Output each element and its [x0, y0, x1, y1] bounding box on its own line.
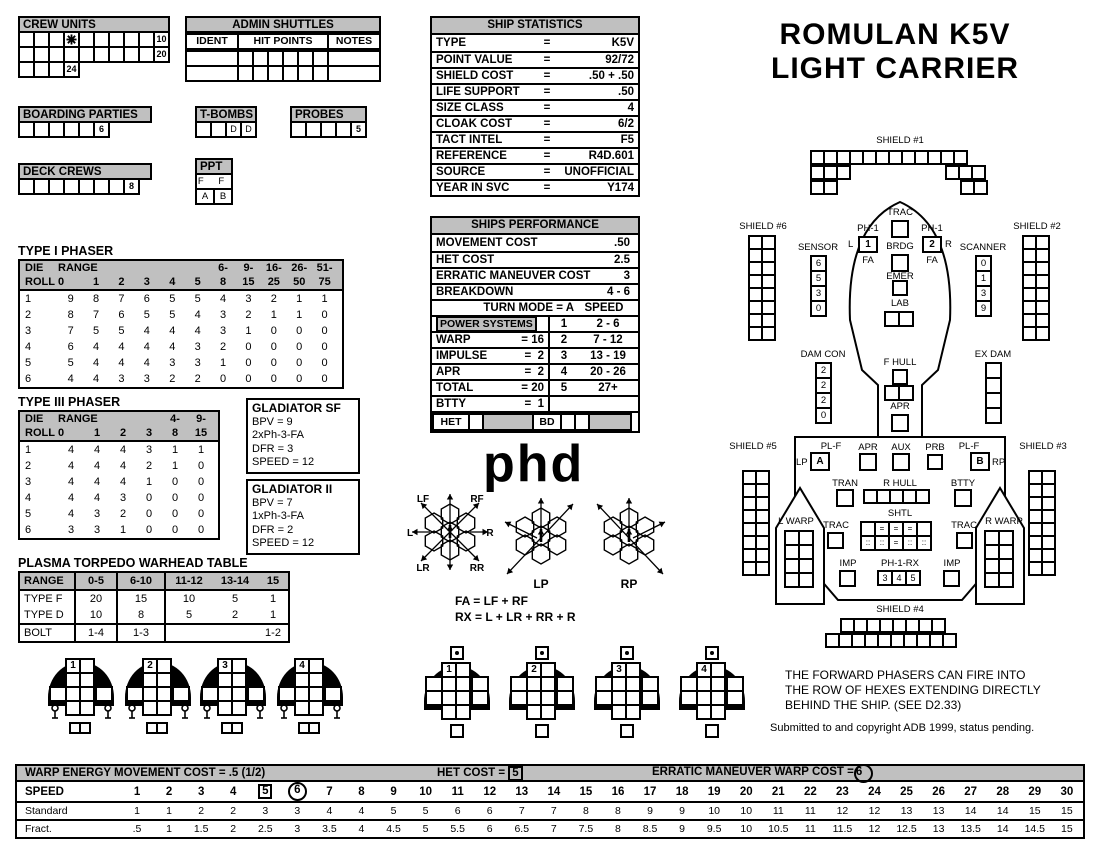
status-dot-box[interactable]	[535, 646, 549, 660]
speed-cell: 15	[1051, 805, 1083, 817]
box-row	[859, 453, 877, 471]
wing-box[interactable]	[95, 686, 113, 702]
stat-row: REFERENCE=R4D.601	[432, 147, 638, 163]
crew-unit-box[interactable]: 20	[153, 46, 170, 63]
phaser-value-cell: 0	[287, 355, 312, 371]
trac-box[interactable]	[827, 532, 844, 549]
phaser-value-cell: 4	[134, 339, 159, 355]
deck-crews-tracker: DECK CREWS 8	[18, 163, 152, 195]
standard-row: Standard11223344556677889910101111121213…	[17, 801, 1083, 819]
phaser-value-cell: 3	[109, 371, 134, 387]
ppt-a-box[interactable]: A	[195, 188, 215, 205]
hardpoint-icon	[127, 704, 137, 720]
probe-box[interactable]	[927, 454, 943, 470]
dam-con-box[interactable]: 0	[815, 407, 832, 424]
emer-box	[892, 280, 908, 296]
note-line: THE FORWARD PHASERS CAN FIRE INTO	[785, 668, 1041, 683]
fract-row: Fract..511.522.533.544.555.566.577.588.5…	[17, 819, 1083, 837]
admin-shuttles-header: IDENT HIT POINTS NOTES	[185, 33, 381, 50]
shield-box[interactable]	[931, 618, 946, 633]
t-bombs-boxes: DD	[195, 121, 257, 138]
box-row	[810, 180, 838, 195]
plasma-cell: 15	[258, 573, 288, 589]
box-row: DD	[195, 121, 257, 138]
wing-box[interactable]	[726, 690, 744, 706]
phaser-value-cell: 0	[312, 307, 337, 323]
box-row	[185, 65, 381, 82]
phaser-value-cell: 1	[110, 522, 136, 538]
fighter-box[interactable]	[79, 700, 95, 716]
stat-eq: =	[534, 102, 560, 114]
speed-cell: 14	[955, 805, 987, 817]
stat-label: POINT VALUE	[436, 54, 534, 66]
shield-box[interactable]	[1041, 561, 1056, 576]
phaser-header-cell: 5	[185, 275, 210, 289]
speed-cell: 8	[602, 805, 634, 817]
phaser-header-cell: 3	[134, 275, 159, 289]
phaser-value-cell: 3	[210, 323, 235, 339]
fighter-spec-line: BPV = 7	[252, 497, 354, 511]
plasma-cell: 1-3	[118, 625, 166, 641]
sensor-label: SENSOR	[798, 242, 838, 253]
wing-box[interactable]	[641, 690, 659, 706]
turn-speed-range: 20 - 26	[578, 366, 638, 378]
speed-cell: 8	[602, 823, 634, 835]
wing-box[interactable]	[172, 686, 190, 702]
speed-cell: 12	[858, 805, 890, 817]
plasma-cell	[166, 625, 212, 641]
phaser-value-cell: 3	[185, 355, 210, 371]
scanner-box[interactable]: 9	[975, 300, 992, 317]
bridge-box	[891, 254, 909, 272]
aux-box[interactable]	[892, 453, 910, 471]
shield-box	[742, 470, 770, 576]
deck-crew-box[interactable]: 8	[123, 178, 140, 195]
ordnance-box[interactable]	[231, 722, 243, 734]
boarding-party-box[interactable]: 6	[93, 121, 110, 138]
speed-cell: 23	[826, 786, 858, 798]
phaser-header-cell	[160, 261, 185, 275]
speed-cell: 9	[634, 805, 666, 817]
speed-cell: 2	[217, 805, 249, 817]
stat-row: TACT INTEL=F5	[432, 131, 638, 147]
stat-eq: =	[534, 86, 560, 98]
speed-cell: 6	[474, 805, 506, 817]
hardpoint-icon	[279, 704, 289, 720]
ppt-tracker: PPT F F A B	[195, 158, 233, 205]
bd-gray-box[interactable]	[588, 413, 632, 431]
power-label: IMPULSE	[436, 350, 524, 362]
speed-cell: 27	[955, 786, 987, 798]
fighter-box[interactable]	[231, 700, 247, 716]
shield-box	[748, 235, 776, 341]
status-dot-box[interactable]	[450, 646, 464, 660]
stat-label: SIZE CLASS	[436, 102, 534, 114]
box-row	[927, 454, 943, 470]
warp-box	[784, 530, 814, 588]
type1-phaser-table: DIERANGE6-9-16-26-51-ROLL012345815255075…	[18, 259, 344, 389]
power-cell: WARP= 16	[432, 333, 550, 347]
btty-box	[954, 489, 972, 507]
admin-shuttles-title: ADMIN SHUTTLES	[185, 16, 381, 33]
power-value: = 20	[521, 382, 544, 394]
perf-label: MOVEMENT COST	[436, 237, 614, 249]
stat-value: .50 + .50	[560, 70, 634, 82]
phaser-value-cell: 0	[210, 371, 235, 387]
ex-dam-box[interactable]	[985, 407, 1002, 424]
shield-box[interactable]	[823, 180, 838, 195]
plasma-a-box[interactable]: A	[810, 452, 830, 471]
turn-mode-value: 5	[550, 382, 578, 394]
shield-box[interactable]	[973, 180, 988, 195]
speed-cell: 30	[1051, 786, 1083, 798]
phaser-value-cell: 0	[236, 355, 261, 371]
phaser-value-cell: 2	[185, 371, 210, 387]
phaser-row: 2444210	[20, 458, 218, 474]
shield-box	[810, 165, 851, 180]
ordnance-box[interactable]	[450, 724, 464, 738]
plasma-row: TYPE F20151051	[20, 591, 288, 607]
box-row	[960, 180, 988, 195]
wing-box[interactable]	[556, 690, 574, 706]
shield-box	[1022, 235, 1050, 341]
het-gray-box[interactable]	[482, 413, 534, 431]
power-turn-row: BTTY= 1	[432, 395, 638, 411]
box-row: 345	[877, 570, 921, 586]
phaser-value-cell: 5	[20, 506, 58, 522]
perf-value: 4 - 6	[607, 286, 634, 298]
box-row	[985, 407, 1002, 424]
warp-box[interactable]	[798, 572, 814, 588]
box-row	[956, 532, 973, 549]
phaser-value-cell: 6	[20, 371, 58, 387]
phaser-header-cell: 4	[160, 275, 185, 289]
lab-box	[884, 311, 914, 327]
stat-row: POINT VALUE=92/72	[432, 51, 638, 67]
phaser-value-cell: 7	[58, 323, 83, 339]
phaser-value-cell: 3	[84, 506, 110, 522]
phaser-value-cell: 3	[160, 355, 185, 371]
stat-value: .50	[560, 86, 634, 98]
plasma-cell: 10	[166, 591, 212, 607]
plasma-cell	[212, 625, 258, 641]
ph1-left-arc: FA	[862, 255, 874, 266]
plasma-cell: 13-14	[212, 573, 258, 589]
box-row	[892, 280, 908, 296]
ordnance-box[interactable]	[705, 724, 719, 738]
power-value: = 2	[524, 366, 544, 378]
f-hull-box	[884, 385, 914, 401]
ordnance-box[interactable]	[156, 722, 168, 734]
speed-cell: 8	[570, 805, 602, 817]
phaser-value-cell: 4	[185, 307, 210, 323]
shield-box	[840, 618, 946, 633]
shield-box[interactable]	[953, 150, 968, 165]
warp-cost-header: WARP ENERGY MOVEMENT COST = .5 (1/2)	[17, 767, 437, 779]
speed-cell: 7	[538, 805, 570, 817]
phaser-header-cell: RANGE	[58, 261, 83, 275]
ship-statistics-rows: TYPE=K5VPOINT VALUE=92/72SHIELD COST=.50…	[432, 35, 638, 195]
admin-shuttle-box[interactable]	[327, 65, 381, 82]
speed-cell: 11	[762, 805, 794, 817]
plasma-row: RANGE0-56-1011-1213-1415	[20, 573, 288, 591]
speed-cell: 13	[923, 823, 955, 835]
speed-cell: 28	[987, 786, 1019, 798]
phaser-value-cell: 0	[312, 339, 337, 355]
fighter-spec-line: GLADIATOR II	[252, 483, 354, 497]
phaser-value-cell: 0	[162, 506, 188, 522]
perf-value: 2.5	[614, 254, 634, 266]
shield-box[interactable]	[971, 165, 986, 180]
speed-cell: 1	[153, 823, 185, 835]
fighter-box[interactable]	[625, 704, 641, 720]
phaser-header-cell: 1	[83, 275, 108, 289]
trac-box[interactable]	[891, 220, 909, 238]
phaser-header-cell: 0	[58, 275, 83, 289]
ph1-right-side: R	[945, 239, 952, 250]
speed-cell: 4	[313, 805, 345, 817]
btty-box[interactable]	[954, 489, 972, 507]
shield-box	[810, 180, 838, 195]
speed-cell: 1	[121, 805, 153, 817]
shield-box[interactable]	[761, 326, 776, 341]
performance-row: ERRATIC MANEUVER COST3	[432, 267, 638, 283]
fighter-box[interactable]	[540, 704, 556, 720]
performance-row: HET COST2.5	[432, 251, 638, 267]
box-row: 8	[18, 178, 152, 195]
imp-box[interactable]	[839, 570, 856, 587]
ppt-row2: A B	[195, 188, 233, 205]
phaser-header-cell: 6-	[210, 261, 235, 275]
phaser-value-cell: 0	[261, 323, 286, 339]
hardpoint-icon	[180, 704, 190, 720]
ph1-right-box[interactable]: 2	[922, 236, 942, 253]
speed-cell: 6	[281, 782, 313, 801]
phaser-value-cell: 8	[58, 307, 83, 323]
phaser-value-cell: 4	[58, 506, 84, 522]
ordnance-box[interactable]	[79, 722, 91, 734]
het-bd-row: HET BD	[432, 411, 638, 431]
phaser-row: 4443000	[20, 490, 218, 506]
fa-formula: FA = LF + RF	[455, 594, 528, 608]
speed-cell: 25	[891, 786, 923, 798]
box-row	[863, 489, 930, 504]
speed-cell: 2	[153, 786, 185, 798]
phaser-value-cell: 2	[261, 291, 286, 307]
box-row	[884, 385, 914, 401]
trac-label: TRAC	[823, 520, 849, 531]
shield-box[interactable]	[1035, 326, 1050, 341]
box-row: 5	[290, 121, 367, 138]
phaser-value-cell: 0	[236, 371, 261, 387]
speed-cell: 11	[794, 805, 826, 817]
box-row	[892, 453, 910, 471]
apr-box[interactable]	[859, 453, 877, 471]
speed-cell: 3.5	[313, 823, 345, 835]
phaser-value-cell: 4	[109, 355, 134, 371]
apr-label: APR	[890, 401, 910, 412]
stat-row: LIFE SUPPORT=.50	[432, 83, 638, 99]
phaser-value-cell: 4	[83, 339, 108, 355]
phaser-row: 644332200000	[20, 371, 342, 387]
ph1-left-box[interactable]: 1	[858, 236, 878, 253]
fighter-box[interactable]	[455, 704, 471, 720]
phaser-value-cell: 5	[160, 291, 185, 307]
probe-box[interactable]: 5	[350, 121, 367, 138]
box-row: 0	[810, 300, 827, 317]
phaser-value-cell: 2	[110, 506, 136, 522]
fighter-right: 3	[593, 646, 661, 740]
sensor-box[interactable]: 0	[810, 300, 827, 317]
phaser-value-cell: 4	[84, 474, 110, 490]
power-label: BTTY	[436, 398, 524, 410]
phaser-header-cell: 51-	[312, 261, 337, 275]
arc-label: R	[486, 528, 494, 539]
shield-box[interactable]	[942, 633, 957, 648]
probe-label: PRB	[925, 442, 945, 453]
phaser-value-cell: 1	[162, 458, 188, 474]
trac-box	[956, 532, 973, 549]
phaser-value-cell: 1	[261, 307, 286, 323]
speed-row: SPEED12345678910111213141516171819202122…	[17, 782, 1083, 801]
speed-cell: 1.5	[185, 823, 217, 835]
fighter-spec-line: 2xPh-3-FA	[252, 429, 354, 443]
warp-energy-table: WARP ENERGY MOVEMENT COST = .5 (1/2) HET…	[15, 764, 1085, 839]
type1-phaser-title: TYPE I PHASER	[18, 244, 113, 258]
speed-cell: 2	[185, 805, 217, 817]
plasma-cell: 11-12	[166, 573, 212, 589]
stat-value: 92/72	[560, 54, 634, 66]
wing-box[interactable]	[471, 690, 489, 706]
phaser-value-cell: 0	[188, 474, 214, 490]
fighter-left: 2	[124, 656, 192, 736]
speed-cell: 1	[121, 786, 153, 798]
fighter-box[interactable]	[308, 700, 324, 716]
phaser-value-cell: 3	[136, 442, 162, 458]
speed-cell: 9	[666, 805, 698, 817]
phaser-row: 198765543211	[20, 291, 342, 307]
speed-cell: 12	[858, 823, 890, 835]
trac-box[interactable]	[956, 532, 973, 549]
phaser-header-cell	[185, 261, 210, 275]
phaser-value-cell: 5	[160, 307, 185, 323]
shield4-label: SHIELD #4	[876, 604, 924, 615]
deck-crews-boxes: 8	[18, 178, 152, 195]
speed-cell: 13.5	[955, 823, 987, 835]
het-label: HET	[432, 413, 470, 431]
ordnance-box[interactable]	[620, 724, 634, 738]
phaser-value-cell: 8	[83, 291, 108, 307]
bridge-box[interactable]	[891, 254, 909, 272]
wing-box[interactable]	[247, 686, 265, 702]
shuttle-box[interactable]: ::	[916, 535, 932, 551]
phaser-value-cell: 1	[312, 291, 337, 307]
tran-box[interactable]	[836, 489, 854, 507]
box-row	[784, 572, 814, 588]
ordnance-box[interactable]	[535, 724, 549, 738]
phaser-value-cell: 4	[84, 442, 110, 458]
stat-label: CLOAK COST	[436, 118, 534, 130]
speed-cell: 14	[538, 786, 570, 798]
status-dot-box[interactable]	[620, 646, 634, 660]
power-label: APR	[436, 366, 524, 378]
status-dot-box[interactable]	[705, 646, 719, 660]
phaser-header-cell: 25	[261, 275, 286, 289]
phaser-header-cell: 2	[109, 275, 134, 289]
performance-stat-rows: MOVEMENT COST.50HET COST2.5ERRATIC MANEU…	[432, 235, 638, 299]
fighter-right: 4	[678, 646, 746, 740]
speed-cell: 13	[506, 786, 538, 798]
stat-eq: =	[534, 150, 560, 162]
rx-formula: RX = L + LR + RR + R	[455, 610, 575, 624]
speed-cell: 4.5	[378, 823, 410, 835]
hardpoint-icon	[103, 704, 113, 720]
plasma-cell: 1-4	[76, 625, 118, 641]
plasma-cell: TYPE D	[20, 607, 76, 623]
f-hull-box[interactable]	[898, 385, 914, 401]
power-value: = 1	[524, 398, 544, 410]
phaser-header-cell: 2	[110, 426, 136, 440]
status-dot-icon	[710, 651, 714, 655]
phaser-value-cell: 0	[312, 371, 337, 387]
stat-row: SOURCE=UNOFFICIAL	[432, 163, 638, 179]
r-hull-box[interactable]	[915, 489, 930, 504]
shield-box[interactable]	[836, 165, 851, 180]
speed-cost-rows: SPEED12345678910111213141516171819202122…	[15, 782, 1085, 839]
fighter-left: 4	[276, 656, 344, 736]
ppt-b-box[interactable]: B	[213, 188, 233, 205]
phaser-value-cell: 2	[136, 458, 162, 474]
t-bomb-box[interactable]: D	[240, 121, 257, 138]
phaser-value-cell: 4	[20, 490, 58, 506]
speed-cell: 14.5	[1019, 823, 1051, 835]
box-row	[891, 414, 909, 432]
box-row	[892, 369, 908, 385]
phaser-header-cell: 15	[188, 426, 214, 440]
f-hull-box[interactable]	[892, 369, 908, 385]
stat-value: K5V	[560, 37, 634, 49]
copyright-line: Submitted to and copyright ADB 1999, sta…	[770, 722, 1034, 734]
ph1-rx-box[interactable]: 5	[905, 570, 921, 586]
note-line: BEHIND THE SHIP. (SEE D2.33)	[785, 698, 1041, 713]
firing-arc-svg: LP	[496, 492, 586, 592]
sheet-title: ROMULAN K5V LIGHT CARRIER	[730, 18, 1060, 86]
box-row	[840, 618, 946, 633]
admin-shuttle-box[interactable]	[185, 65, 239, 82]
ordnance-box[interactable]	[308, 722, 320, 734]
plasma-cell: 1	[258, 591, 288, 607]
speed-cell: 22	[794, 786, 826, 798]
turn-speed-range: 13 - 19	[578, 350, 638, 362]
speed-cell: 9	[378, 786, 410, 798]
ph1-left-label: PH-1	[857, 223, 879, 234]
wing-box[interactable]	[324, 686, 342, 702]
fighter-box[interactable]	[710, 704, 726, 720]
crew-unit-box[interactable]: 24	[63, 61, 80, 78]
power-and-turn-rows: POWER SYSTEMS12 - 6WARP= 1627 - 12IMPULS…	[432, 315, 638, 411]
warp-box[interactable]	[998, 572, 1014, 588]
emer-box[interactable]	[892, 280, 908, 296]
fighter-box[interactable]	[156, 700, 172, 716]
box-row: 24	[18, 61, 170, 78]
lab-box[interactable]	[898, 311, 914, 327]
phaser-row: 464444320000	[20, 339, 342, 355]
imp-box[interactable]	[943, 570, 960, 587]
apr-box[interactable]	[891, 414, 909, 432]
phaser-value-cell: 0	[188, 522, 214, 538]
plasma-b-box[interactable]: B	[970, 452, 990, 471]
shield-box[interactable]	[755, 561, 770, 576]
